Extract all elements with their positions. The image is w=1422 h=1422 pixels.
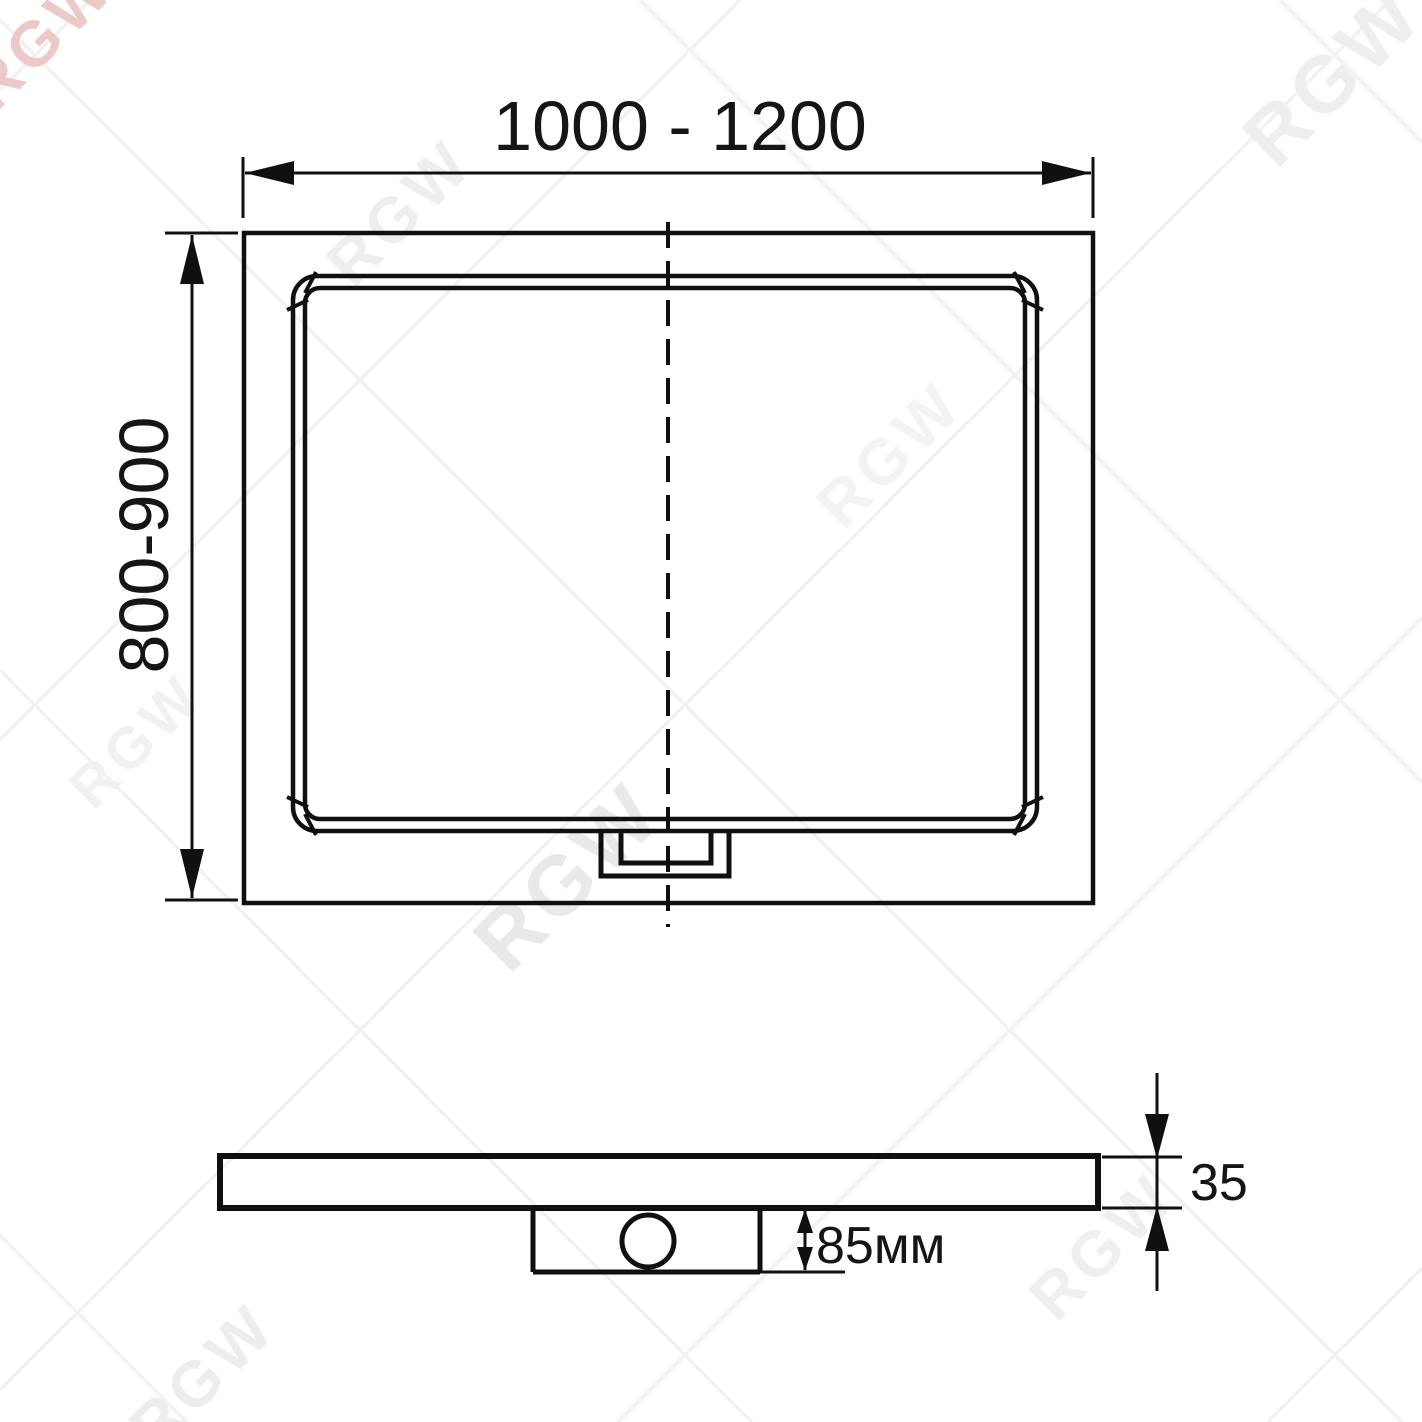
drain-depth-arrow-down-icon xyxy=(797,1247,813,1271)
depth-dimension: 800-900 xyxy=(105,233,238,900)
watermark-line xyxy=(1268,1268,1422,1422)
rim-corner-ticks xyxy=(287,272,1043,835)
watermark-rgw: RGW xyxy=(312,125,486,299)
drain-depth-arrow-up-icon xyxy=(797,1209,813,1233)
watermark-rgw: RGW xyxy=(1226,0,1422,183)
depth-dimension-label: 800-900 xyxy=(105,417,183,674)
drain-outlet-circle xyxy=(622,1215,674,1267)
tray-rim-outer xyxy=(293,276,1037,831)
watermark-rgw-accent: RGW xyxy=(0,0,129,124)
depth-arrow-top-icon xyxy=(180,235,204,284)
tray-outer-edge xyxy=(244,233,1093,903)
drain-depth-dimension-label: 85мм xyxy=(816,1217,945,1275)
width-arrow-right-icon xyxy=(1042,161,1091,185)
watermark-line xyxy=(0,0,1390,1390)
shower-tray-technical-drawing: RGW RGW RGW RGW RGW RGW RGW RGW xyxy=(0,0,1422,1422)
tray-profile xyxy=(220,1156,1098,1208)
drain-depth-dimension: 85мм xyxy=(797,1209,945,1275)
drain-box-side-view xyxy=(533,1208,760,1272)
watermark-rgw: RGW xyxy=(115,1289,289,1422)
width-dimension-label: 1000 - 1200 xyxy=(493,87,867,165)
width-arrow-left-icon xyxy=(245,161,294,185)
watermark-rgw: RGW xyxy=(802,367,976,541)
watermark-line xyxy=(618,618,1422,1422)
thickness-dimension-label: 35 xyxy=(1190,1154,1248,1212)
side-view xyxy=(220,1156,1098,1272)
thickness-arrow-down-icon xyxy=(1145,1114,1169,1159)
depth-arrow-bottom-icon xyxy=(180,849,204,898)
tray-rim-inner xyxy=(305,288,1025,819)
